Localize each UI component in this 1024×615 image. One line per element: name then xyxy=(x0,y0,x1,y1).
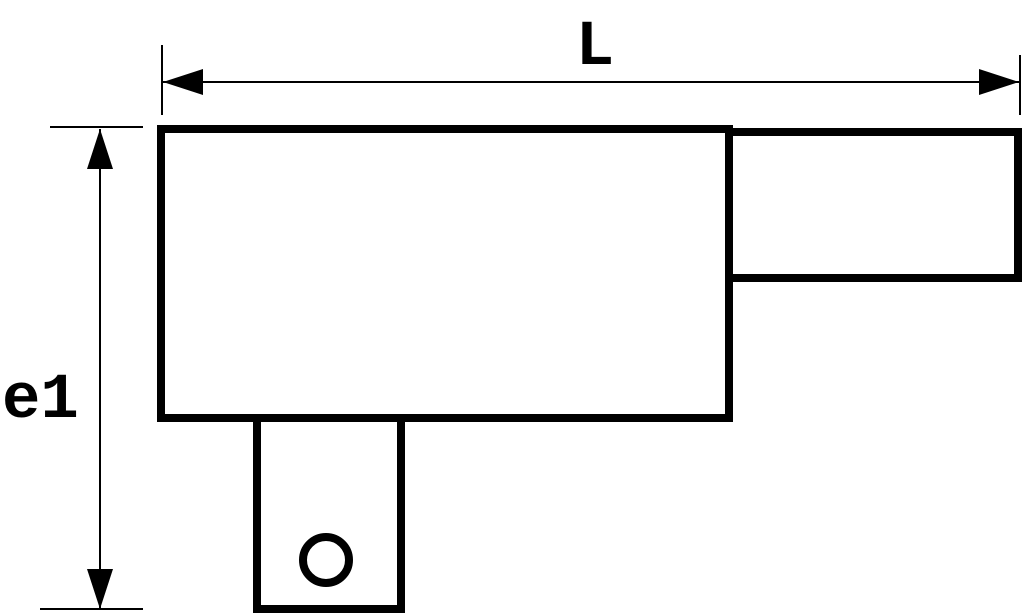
length-dimension-label: L xyxy=(560,16,630,80)
right-extension-outline xyxy=(725,128,1022,282)
technical-drawing-canvas: L e1 xyxy=(0,0,1024,615)
e1-dimension-line xyxy=(99,129,101,609)
height-dimension-label: e1 xyxy=(2,369,79,433)
e1-arrowhead-up-icon xyxy=(87,129,113,169)
l-arrowhead-left-icon xyxy=(163,69,203,95)
l-arrowhead-right-icon xyxy=(979,69,1019,95)
e1-extension-tick-top xyxy=(50,126,143,128)
e1-arrowhead-down-icon xyxy=(87,569,113,609)
l-extension-line-right xyxy=(1019,55,1021,115)
pin-hole-circle xyxy=(299,533,353,587)
body-outline xyxy=(157,125,733,422)
